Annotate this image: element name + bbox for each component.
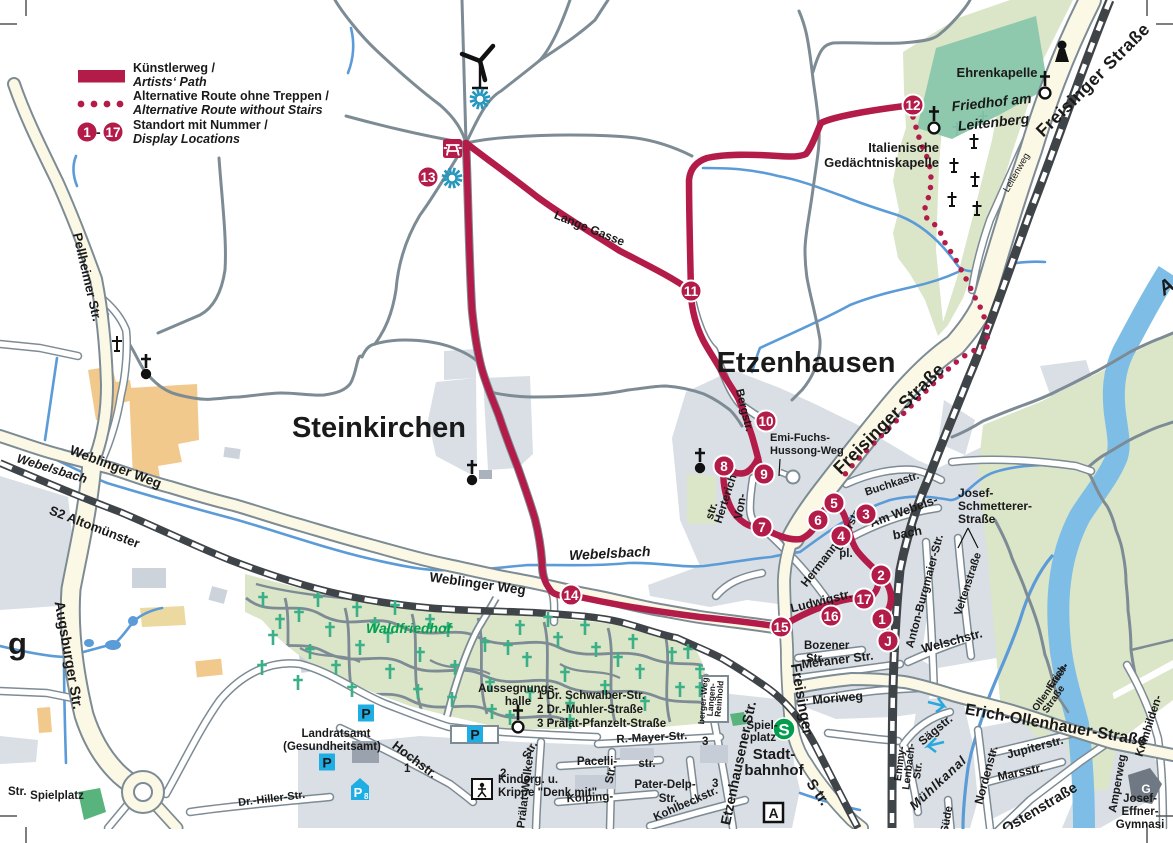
svg-text:Etzenhausen: Etzenhausen bbox=[717, 347, 896, 379]
svg-text:4: 4 bbox=[837, 529, 845, 544]
svg-text:10: 10 bbox=[758, 414, 773, 429]
svg-text:3: 3 bbox=[862, 507, 870, 522]
svg-text:P: P bbox=[354, 785, 363, 800]
svg-text:12: 12 bbox=[905, 98, 920, 113]
svg-text:g: g bbox=[8, 626, 27, 661]
svg-text:Schmetterer-: Schmetterer- bbox=[958, 499, 1032, 513]
svg-text:2: 2 bbox=[500, 768, 506, 780]
svg-text:J: J bbox=[884, 634, 892, 649]
svg-text:bahnhof: bahnhof bbox=[744, 762, 804, 779]
svg-text:(Gesundheitsamt): (Gesundheitsamt) bbox=[283, 741, 381, 753]
svg-text:A: A bbox=[768, 805, 778, 821]
svg-text:Landratsamt: Landratsamt bbox=[301, 728, 370, 740]
svg-text:17: 17 bbox=[105, 125, 120, 140]
svg-text:Alternative Route ohne Treppen: Alternative Route ohne Treppen / bbox=[133, 89, 329, 103]
svg-text:Bozener: Bozener bbox=[804, 640, 850, 652]
svg-text:3: 3 bbox=[702, 736, 708, 748]
svg-text:Josef-: Josef- bbox=[1123, 793, 1157, 805]
svg-text:14: 14 bbox=[563, 588, 579, 603]
svg-text:Straße: Straße bbox=[958, 512, 996, 526]
svg-text:13: 13 bbox=[420, 170, 436, 185]
svg-text:Spielplatz: Spielplatz bbox=[30, 790, 84, 802]
svg-text:9: 9 bbox=[760, 467, 768, 482]
svg-text:3 Prälat-Pfanzelt-Straße: 3 Prälat-Pfanzelt-Straße bbox=[537, 718, 666, 730]
svg-text:1 Dr. Schwalber-Str.: 1 Dr. Schwalber-Str. bbox=[537, 690, 645, 702]
svg-text:Ehrenkapelle: Ehrenkapelle bbox=[957, 65, 1038, 80]
svg-text:-: - bbox=[96, 124, 101, 140]
svg-text:Künstlerweg /: Künstlerweg / bbox=[133, 61, 215, 75]
svg-text:11: 11 bbox=[684, 284, 699, 299]
svg-text:Hussong-Weg: Hussong-Weg bbox=[770, 445, 844, 457]
svg-text:Standort mit Nummer /: Standort mit Nummer / bbox=[133, 118, 268, 132]
svg-text:Kolping-: Kolping- bbox=[566, 791, 613, 805]
svg-text:1: 1 bbox=[404, 763, 411, 775]
svg-text:1: 1 bbox=[83, 125, 91, 140]
svg-text:Waldfriedhof: Waldfriedhof bbox=[366, 620, 453, 636]
svg-text:5: 5 bbox=[830, 496, 838, 511]
svg-text:Italienische: Italienische bbox=[868, 140, 939, 155]
svg-text:Gedächtniskapelle: Gedächtniskapelle bbox=[824, 155, 939, 170]
svg-text:S: S bbox=[778, 721, 789, 740]
svg-text:8: 8 bbox=[720, 459, 728, 474]
svg-text:Steinkirchen: Steinkirchen bbox=[292, 412, 466, 444]
svg-text:pl.: pl. bbox=[839, 548, 852, 560]
svg-text:1: 1 bbox=[878, 612, 886, 627]
svg-text:6: 6 bbox=[814, 513, 822, 528]
svg-text:Stadt-: Stadt- bbox=[753, 746, 796, 763]
svg-text:Artists‘ Path: Artists‘ Path bbox=[132, 75, 207, 89]
svg-text:platz: platz bbox=[750, 732, 776, 744]
svg-text:2: 2 bbox=[877, 568, 885, 583]
svg-text:Str.: Str. bbox=[8, 786, 27, 798]
svg-text:Pater-Delp-: Pater-Delp- bbox=[634, 779, 696, 791]
svg-text:3: 3 bbox=[712, 778, 718, 790]
svg-text:2 Dr.-Muhler-Straße: 2 Dr.-Muhler-Straße bbox=[537, 704, 643, 716]
svg-text:Spiel-: Spiel- bbox=[746, 720, 777, 732]
svg-text:15: 15 bbox=[773, 620, 789, 635]
svg-text:Alternative Route without Stai: Alternative Route without Stairs bbox=[132, 103, 323, 117]
svg-text:Effner-: Effner- bbox=[1121, 806, 1158, 818]
svg-text:Josef-: Josef- bbox=[958, 486, 993, 500]
svg-text:Emi-Fuchs-: Emi-Fuchs- bbox=[770, 432, 830, 444]
svg-text:Str.: Str. bbox=[911, 761, 925, 779]
svg-text:7: 7 bbox=[758, 520, 766, 535]
svg-text:17: 17 bbox=[856, 592, 871, 607]
svg-text:16: 16 bbox=[823, 609, 839, 624]
svg-text:Display Locations: Display Locations bbox=[133, 132, 240, 146]
svg-text:8: 8 bbox=[364, 792, 369, 801]
svg-text:halle: halle bbox=[505, 696, 531, 708]
svg-text:str.: str. bbox=[638, 758, 655, 770]
